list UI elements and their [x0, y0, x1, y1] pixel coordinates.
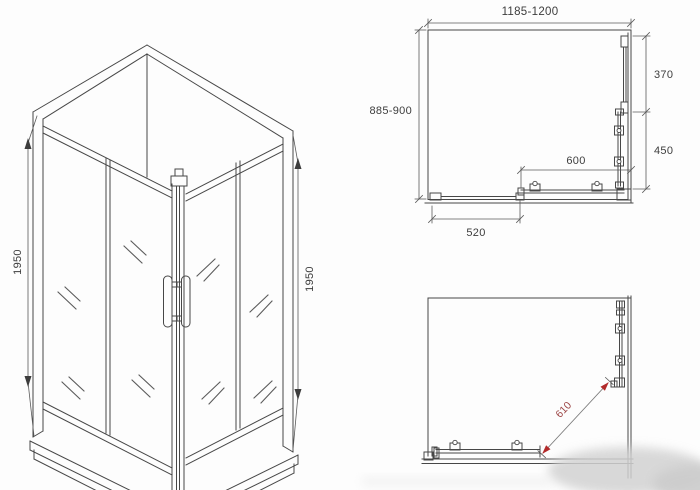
- door-opening-label: 610: [553, 399, 574, 420]
- front-sliding-door: [518, 181, 624, 195]
- dimension-side-door: 450: [633, 112, 673, 193]
- isometric-view: 1950 1950: [12, 45, 316, 490]
- side-fixed-panel: [621, 36, 628, 113]
- overall-width-label: 1185-1200: [502, 6, 559, 18]
- open-side-door: [611, 301, 625, 387]
- plan-view-closed: 1185-1200 885-900 370 450 600: [370, 6, 674, 239]
- height-right-label: 1950: [304, 266, 316, 292]
- shower-tray: [30, 402, 298, 490]
- glass-reflection-marks: [58, 241, 276, 404]
- side-sliding-door: [615, 109, 632, 200]
- side-fixed-label: 370: [654, 69, 673, 81]
- side-door-label: 450: [654, 145, 673, 157]
- dimension-overall-width: 1185-1200: [425, 6, 635, 28]
- glass-panel-dividers: [106, 158, 240, 435]
- plan-walls: [425, 30, 633, 203]
- dimension-side-fixed: 370: [633, 33, 673, 116]
- dimension-overall-depth: 885-900: [370, 27, 426, 203]
- dimension-height-right: 1950: [293, 135, 316, 450]
- front-fixed-label: 520: [466, 227, 485, 239]
- open-front-door: [424, 440, 540, 460]
- height-left-label: 1950: [12, 249, 24, 275]
- front-fixed-panel: [430, 193, 524, 200]
- drawing-page: 1950 1950: [0, 0, 700, 490]
- technical-drawing: 1950 1950: [0, 0, 700, 490]
- dimension-front-fixed: 520: [429, 201, 524, 239]
- front-door-label: 600: [566, 155, 585, 167]
- corner-post: [168, 169, 190, 490]
- dimension-door-opening: 610: [538, 378, 613, 458]
- overall-depth-label: 885-900: [370, 105, 412, 117]
